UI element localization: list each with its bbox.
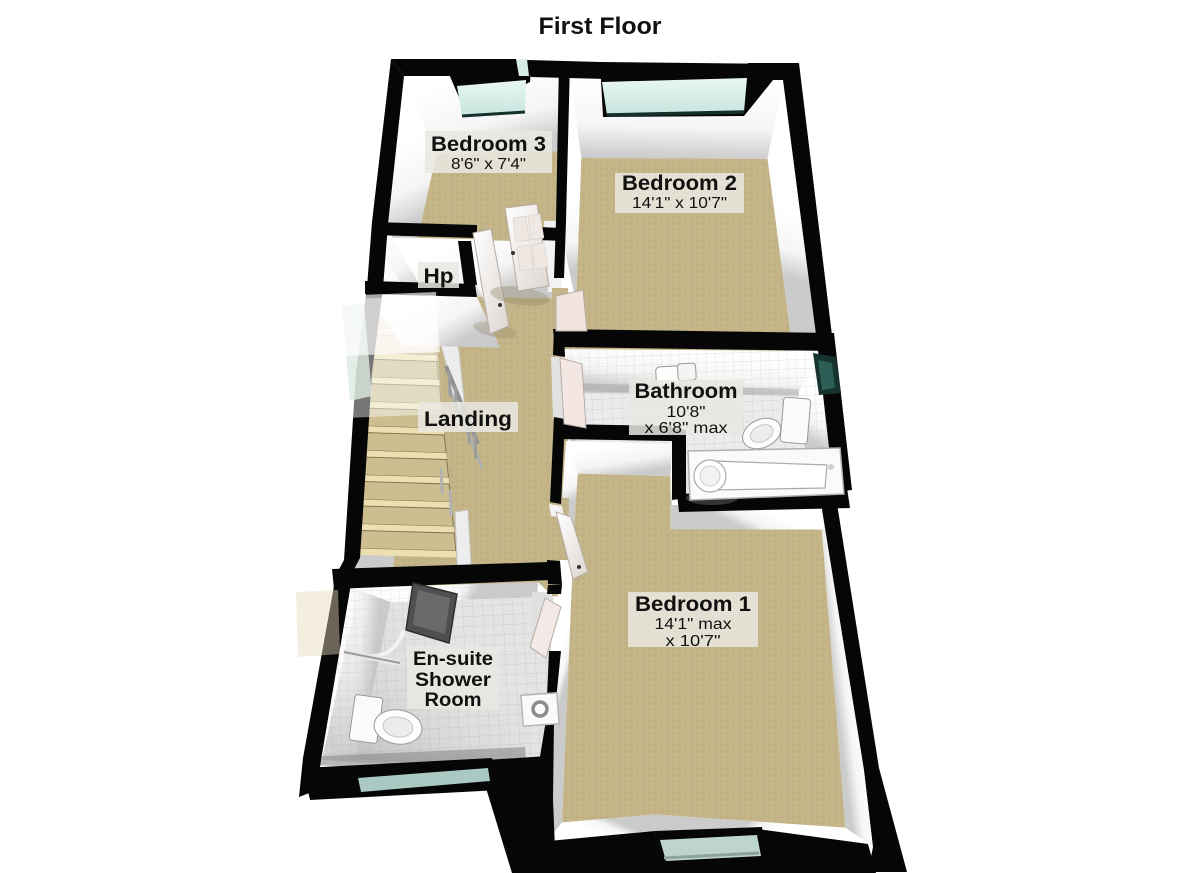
svg-text:14'1" max: 14'1" max — [655, 616, 732, 633]
svg-text:x 10'7": x 10'7" — [666, 633, 721, 650]
svg-text:Hp: Hp — [424, 265, 454, 288]
svg-text:Bathroom: Bathroom — [635, 380, 738, 403]
svg-text:x 6'8" max: x 6'8" max — [645, 420, 728, 437]
svg-text:Shower: Shower — [415, 670, 492, 691]
svg-text:8'6" x 7'4": 8'6" x 7'4" — [451, 156, 526, 173]
svg-text:Room: Room — [425, 690, 482, 711]
svg-text:En-suite: En-suite — [413, 649, 493, 670]
svg-text:Landing: Landing — [424, 408, 512, 431]
svg-text:Bedroom 1: Bedroom 1 — [635, 593, 751, 616]
svg-text:14'1" x 10'7": 14'1" x 10'7" — [632, 195, 727, 212]
svg-text:Bedroom 3: Bedroom 3 — [431, 133, 546, 156]
svg-text:10'8": 10'8" — [667, 404, 706, 421]
svg-text:Bedroom 2: Bedroom 2 — [622, 172, 737, 195]
svg-text:First Floor: First Floor — [539, 13, 662, 40]
